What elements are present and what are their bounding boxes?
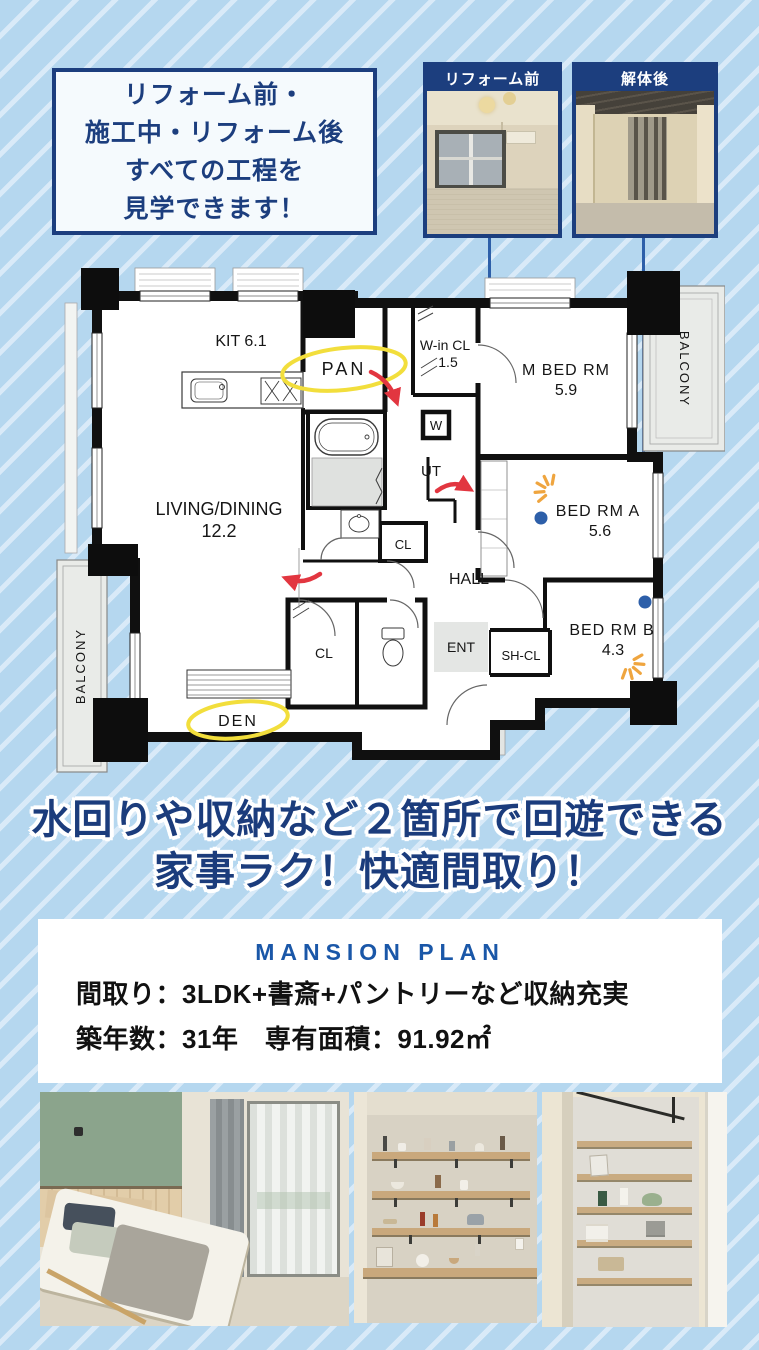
room-size-living-dining: 12.2 — [201, 521, 236, 541]
pantry-shelf — [577, 1141, 692, 1147]
old-carpet-floor — [427, 188, 558, 234]
room-label-master-bedroom: M BED RM — [522, 362, 610, 379]
bedroom-photo — [40, 1092, 349, 1326]
shelf-plank — [372, 1228, 529, 1235]
banner-line-2: 施工中・リフォーム後 — [85, 114, 344, 152]
outlet — [515, 1238, 524, 1250]
room-label-walkin-closet: W-in CL — [420, 337, 471, 353]
rail-hook — [672, 1097, 675, 1123]
before-renovation-image — [427, 91, 558, 234]
red-bottle — [420, 1212, 425, 1226]
pot — [467, 1214, 484, 1225]
demolition-image — [576, 91, 714, 234]
green-accent-wall — [40, 1092, 182, 1186]
flyer-page: リフォーム前・ 施工中・リフォーム後 すべての工程を 見学できます！ リフォーム… — [0, 0, 759, 1350]
headline-line-1: 水回りや収納など２箇所で回遊できる — [0, 794, 759, 846]
open-shelf-photo — [354, 1092, 537, 1323]
small-bowl — [449, 1258, 459, 1264]
photo-before-renovation: リフォーム前 — [423, 62, 562, 238]
bottle — [500, 1136, 505, 1150]
mansion-plan-card: MANSION PLAN 間取り：3LDK+書斎+パントリーなど収納充実 築年数… — [38, 919, 722, 1083]
balcony-right-label: BALCONY — [677, 331, 692, 407]
room-size-master-bedroom: 5.9 — [555, 382, 577, 399]
amber-bottle — [433, 1214, 438, 1227]
balcony-left-label: BALCONY — [73, 628, 88, 704]
bowl — [391, 1182, 404, 1189]
pantry-shelf — [577, 1240, 692, 1246]
plan-card-title: MANSION PLAN — [38, 939, 722, 966]
door-frame — [705, 1092, 727, 1327]
jar — [449, 1141, 455, 1151]
photo-before-label: リフォーム前 — [427, 66, 558, 91]
shelf-plank — [372, 1152, 529, 1159]
banner-line-3: すべての工程を — [125, 152, 304, 190]
wall-sconce — [74, 1127, 83, 1136]
toilet — [382, 628, 404, 666]
room-label-hall: HALL — [449, 571, 489, 588]
room-label-den: DEN — [218, 713, 258, 730]
room-label-utility: UT — [421, 463, 441, 480]
washbasin — [341, 510, 379, 538]
room-size-bedroom-b: 4.3 — [602, 642, 624, 659]
tour-info-banner: リフォーム前・ 施工中・リフォーム後 すべての工程を 見学できます！ — [52, 68, 377, 235]
room-label-entrance: ENT — [447, 639, 475, 655]
plan-dot-bed-b — [639, 596, 652, 609]
floor-plan: BALCONY BALCONY — [35, 248, 725, 778]
room-label-bedroom-a: BED RM A — [556, 503, 640, 520]
plan-card-age-area: 築年数：31年 専有面積：91.92㎡ — [76, 1019, 722, 1056]
pantry-shelf — [577, 1278, 692, 1284]
headline-line-2: 家事ラク！快適間取り！ — [0, 846, 759, 898]
room-label-closet-low: CL — [315, 645, 333, 661]
sheer-window — [247, 1101, 340, 1277]
room-size-walkin-closet: 1.5 — [438, 354, 458, 370]
room-size-bedroom-a: 5.6 — [589, 523, 611, 540]
headline: 水回りや収納など２箇所で回遊できる 家事ラク！快適間取り！ — [0, 794, 759, 898]
leaning-print — [589, 1155, 608, 1177]
bathroom — [308, 412, 385, 508]
pump-bottle — [620, 1188, 628, 1205]
green-bottle — [598, 1191, 607, 1206]
towel-stack-white — [586, 1224, 608, 1239]
cup — [398, 1143, 406, 1151]
plan-card-layout: 間取り：3LDK+書斎+パントリーなど収納充実 — [76, 974, 722, 1011]
old-room-window — [435, 130, 506, 189]
pantry-shelf-photo — [542, 1092, 727, 1327]
room-label-shoe-closet: SH-CL — [501, 648, 540, 663]
room-label-bedroom-b: BED RM B — [569, 622, 654, 639]
towel-stack-gray — [646, 1221, 665, 1235]
banner-line-4: 見学できます！ — [123, 190, 305, 228]
photo-demolition-label: 解体後 — [576, 66, 714, 91]
room-label-washer: W — [430, 418, 443, 433]
canister — [424, 1138, 431, 1150]
plant — [642, 1193, 662, 1206]
room-label-closet-mid: CL — [395, 537, 412, 552]
glass — [475, 1244, 480, 1256]
photo-after-demolition: 解体後 — [572, 62, 718, 238]
photo-frame — [376, 1247, 393, 1267]
room-label-kitchen: KIT 6.1 — [215, 333, 266, 350]
bottle — [383, 1136, 387, 1151]
banner-line-1: リフォーム前・ — [124, 76, 305, 114]
room-label-living-dining: LIVING/DINING — [155, 499, 282, 519]
tray — [383, 1219, 397, 1224]
exposed-studs — [628, 117, 667, 200]
vase — [460, 1180, 468, 1190]
plan-dot-bed-a — [535, 512, 548, 525]
counter-plank — [363, 1268, 537, 1277]
plate — [416, 1254, 429, 1267]
jar — [435, 1175, 441, 1188]
exposed-ceiling — [576, 91, 714, 114]
concrete-floor — [576, 203, 714, 234]
basket — [598, 1257, 624, 1271]
den-desk-hatch — [187, 670, 291, 698]
room-label-pantry: PAN — [322, 359, 367, 379]
pantry-shelf — [577, 1207, 692, 1213]
air-conditioner — [506, 131, 537, 144]
bed-a-closet — [481, 461, 507, 576]
bowl — [475, 1143, 484, 1151]
